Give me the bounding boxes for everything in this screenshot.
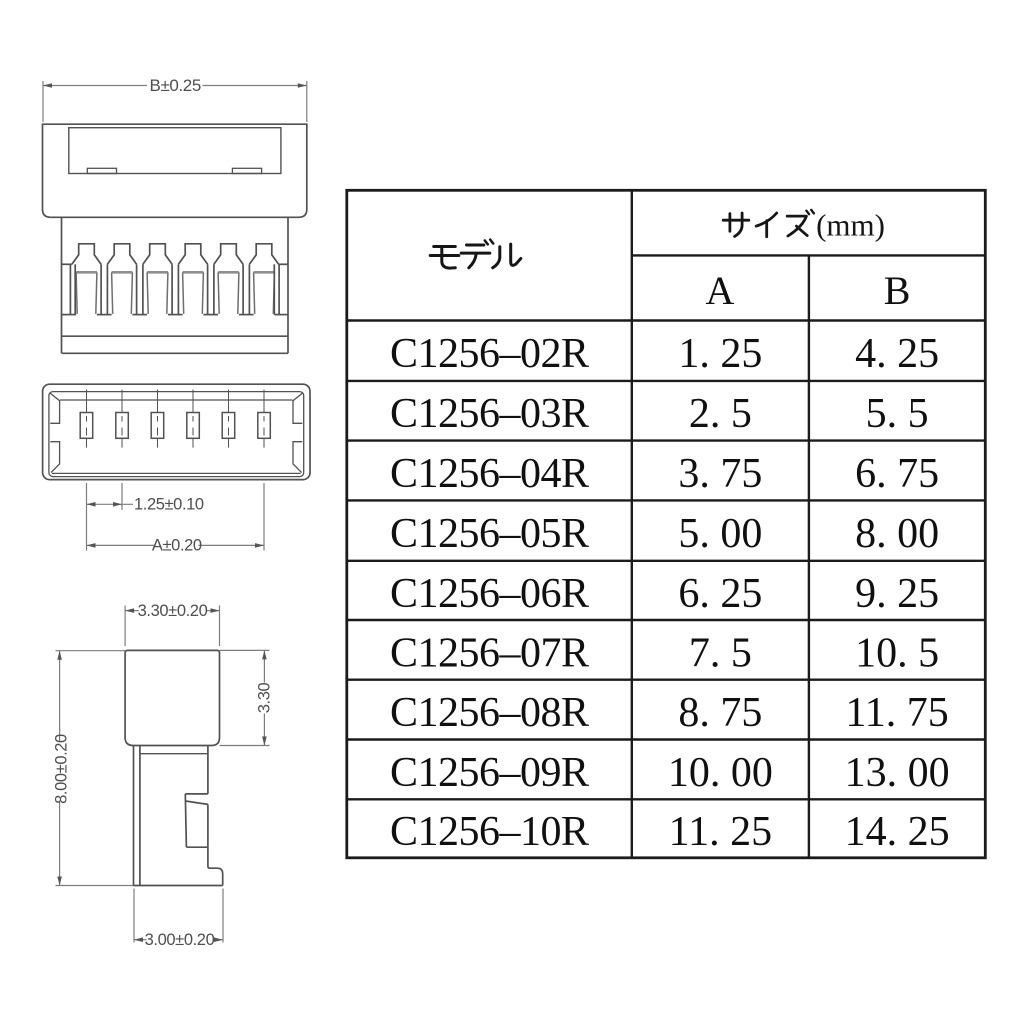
- svg-text:C1256–08R: C1256–08R: [390, 690, 589, 736]
- svg-text:3. 75: 3. 75: [678, 451, 762, 497]
- svg-text:C1256–04R: C1256–04R: [390, 451, 589, 497]
- svg-text:C1256–09R: C1256–09R: [390, 750, 589, 796]
- svg-text:7. 5: 7. 5: [689, 630, 752, 676]
- svg-text:11. 75: 11. 75: [845, 690, 948, 736]
- svg-text:A: A: [705, 268, 734, 313]
- svg-text:10. 5: 10. 5: [855, 630, 939, 676]
- svg-text:8.00±0.20: 8.00±0.20: [52, 734, 70, 804]
- svg-text:1. 25: 1. 25: [678, 331, 762, 377]
- svg-text:A±0.20: A±0.20: [152, 537, 202, 555]
- svg-text:5. 00: 5. 00: [678, 511, 762, 557]
- svg-text:1.25±0.10: 1.25±0.10: [134, 496, 204, 514]
- svg-text:2. 5: 2. 5: [689, 391, 752, 437]
- svg-text:9. 25: 9. 25: [855, 571, 939, 617]
- svg-text:6. 25: 6. 25: [678, 571, 762, 617]
- svg-text:3.30: 3.30: [256, 683, 274, 714]
- svg-text:B±0.25: B±0.25: [150, 76, 201, 95]
- svg-text:C1256–02R: C1256–02R: [390, 331, 589, 377]
- svg-text:14. 25: 14. 25: [845, 809, 950, 855]
- svg-text:13. 00: 13. 00: [845, 750, 950, 796]
- svg-text:C1256–06R: C1256–06R: [390, 571, 589, 617]
- svg-text:11. 25: 11. 25: [669, 809, 772, 855]
- svg-text:8. 75: 8. 75: [678, 690, 762, 736]
- svg-text:10. 00: 10. 00: [668, 750, 773, 796]
- svg-text:(mm): (mm): [816, 208, 885, 243]
- svg-text:C1256–05R: C1256–05R: [390, 511, 589, 557]
- svg-text:3.00±0.20: 3.00±0.20: [145, 931, 215, 949]
- svg-text:C1256–07R: C1256–07R: [390, 630, 589, 676]
- svg-text:3.30±0.20: 3.30±0.20: [138, 602, 208, 620]
- svg-text:8. 00: 8. 00: [855, 511, 939, 557]
- svg-text:B: B: [884, 268, 911, 313]
- svg-text:5. 5: 5. 5: [866, 391, 929, 437]
- svg-text:4. 25: 4. 25: [855, 331, 939, 377]
- svg-text:C1256–10R: C1256–10R: [390, 809, 589, 855]
- svg-text:C1256–03R: C1256–03R: [390, 391, 589, 437]
- svg-text:6. 75: 6. 75: [855, 451, 939, 497]
